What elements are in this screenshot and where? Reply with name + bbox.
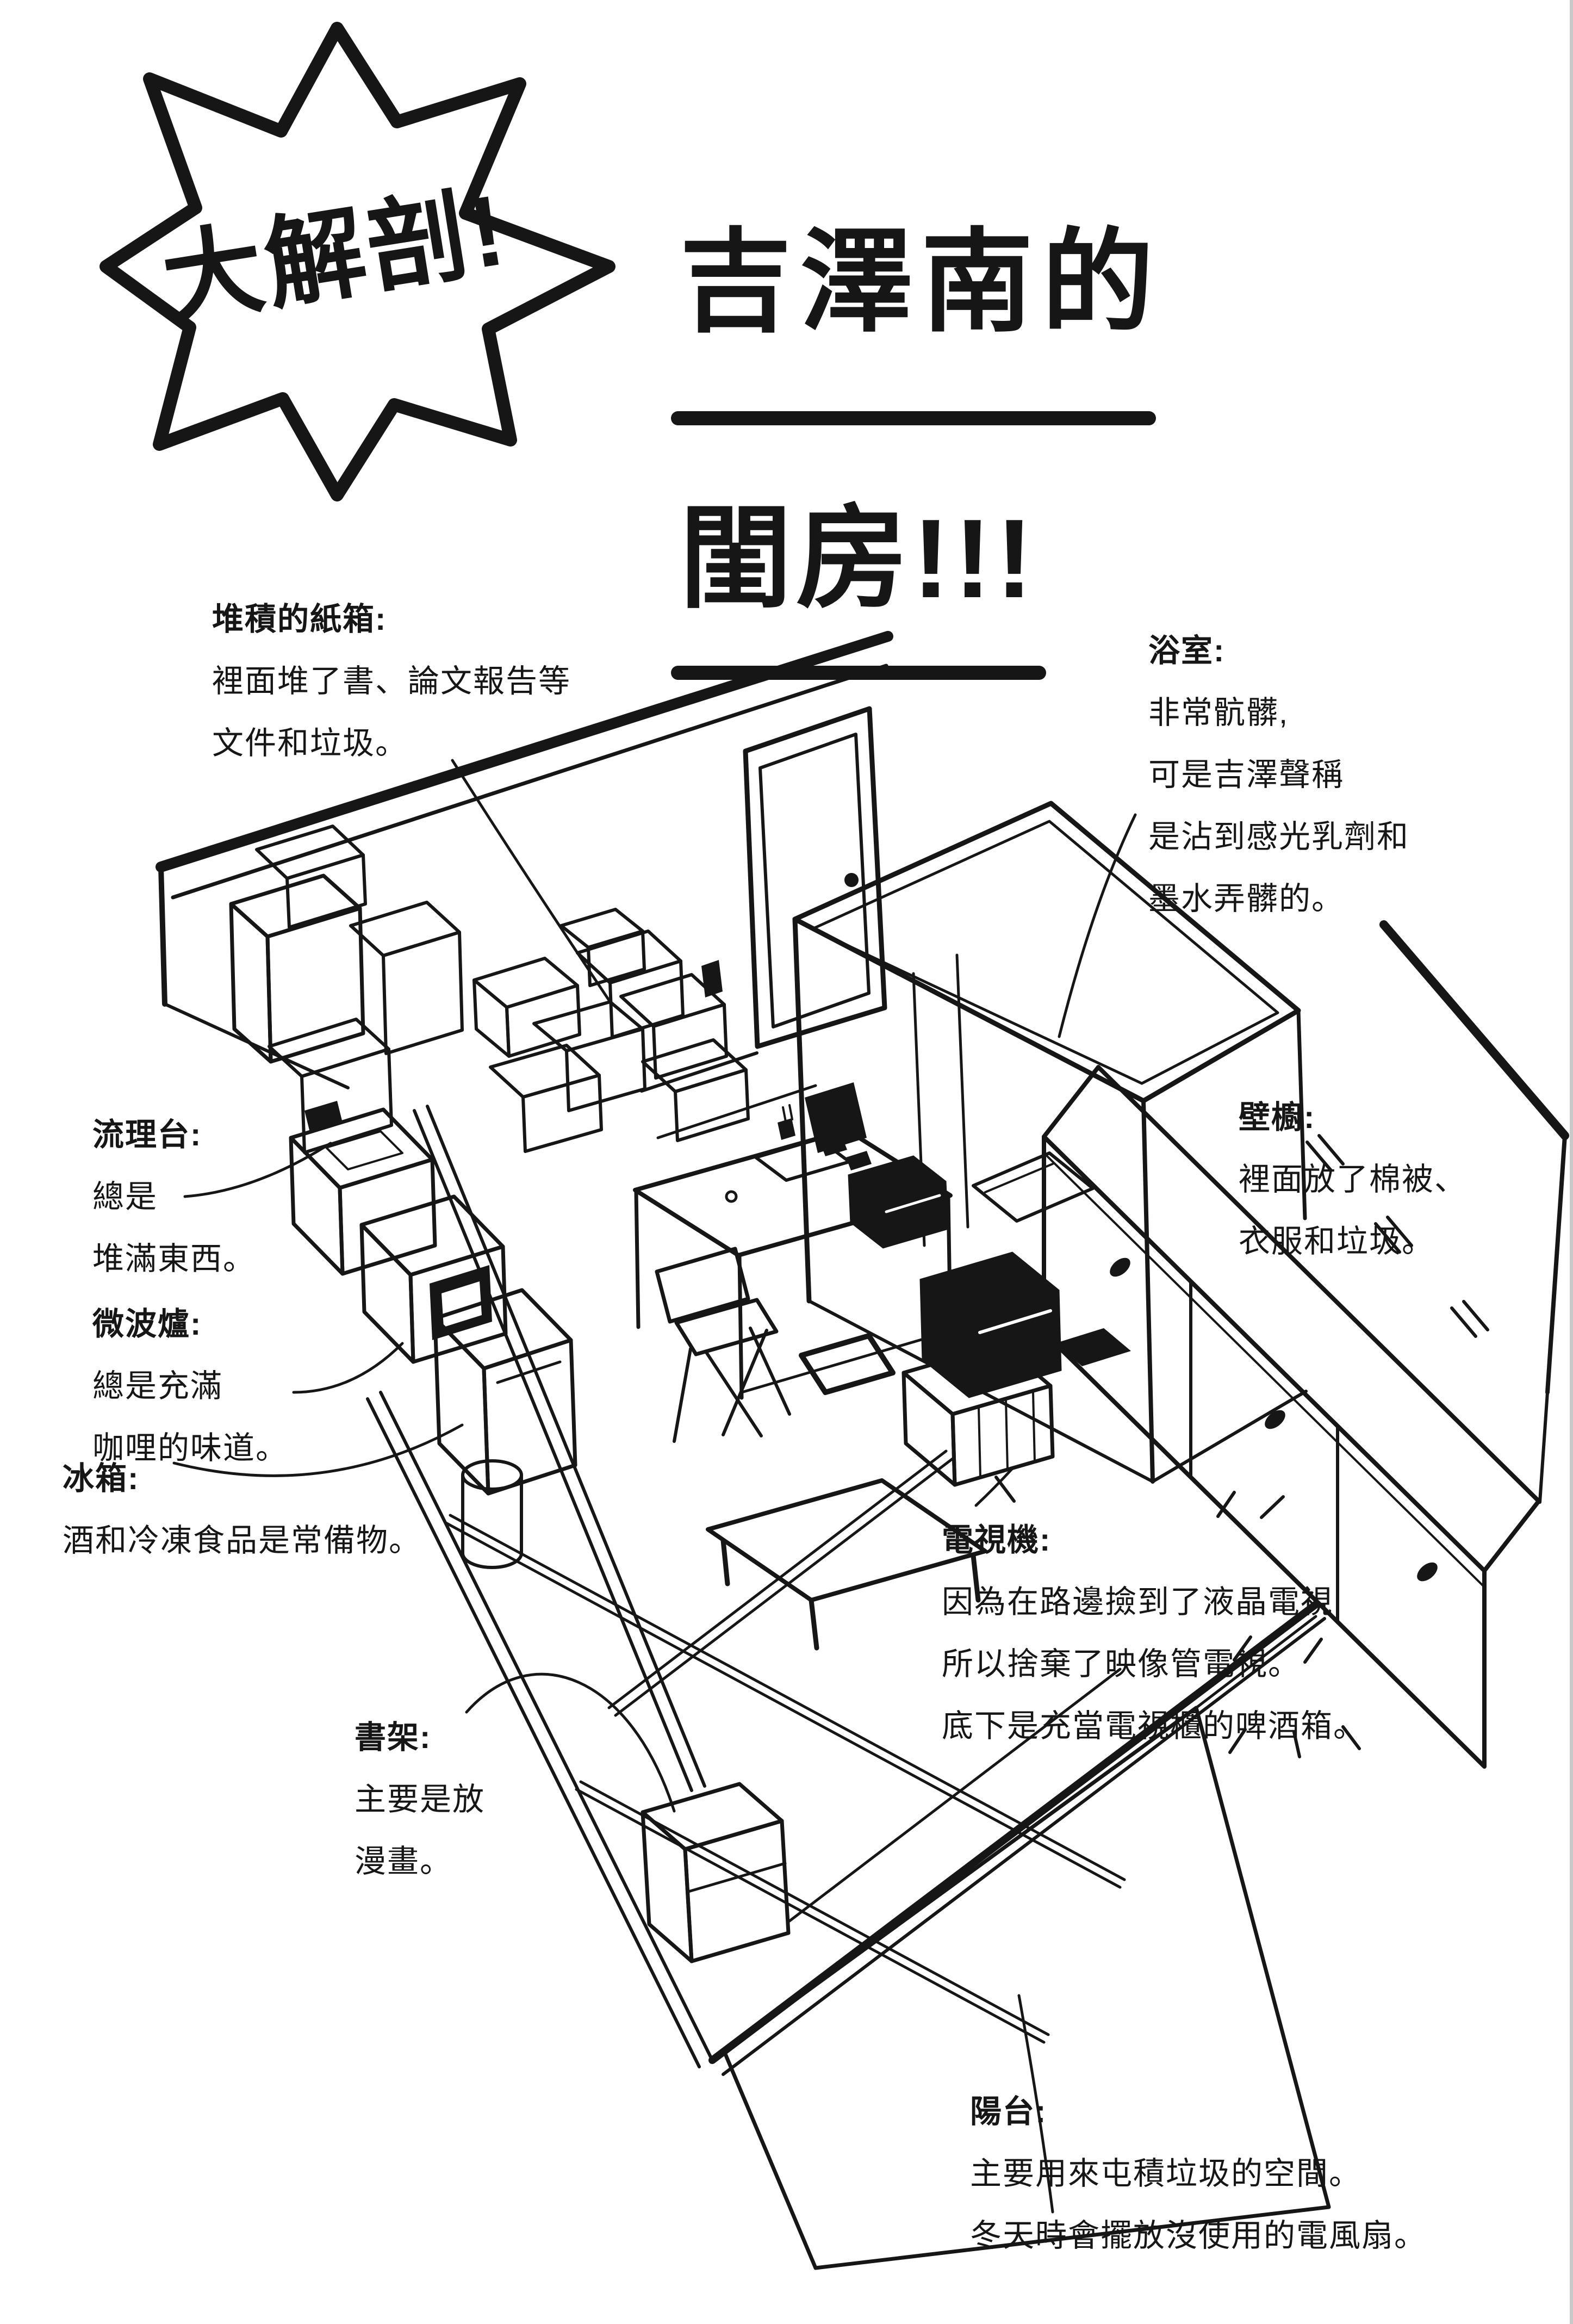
- label-bookshelf-line: 漫畫。: [355, 1831, 485, 1893]
- carton-stacks: [231, 826, 462, 1152]
- label-microwave-line: 總是充滿: [92, 1355, 288, 1417]
- label-tv: 電視機: 因為在路邊撿到了液晶電視, 所以捨棄了映像管電視。 底下是充當電視櫃的…: [942, 1509, 1366, 1757]
- scan-edge-shade: [1570, 0, 1573, 2324]
- page-title-line1: 吉澤南的: [680, 191, 1162, 354]
- label-bathroom-line: 是沾到感光乳劑和: [1148, 806, 1409, 868]
- label-balcony-title: 陽台:: [970, 2081, 1427, 2143]
- label-stacked-boxes: 堆積的紙箱: 裡面堆了書、論文報告等 文件和垃圾。: [212, 588, 571, 774]
- label-bathroom-line: 墨水弄髒的。: [1148, 868, 1409, 930]
- label-microwave-title: 微波爐:: [92, 1293, 288, 1355]
- label-stacked-boxes-line: 文件和垃圾。: [212, 712, 571, 774]
- label-tv-line: 所以捨棄了映像管電視。: [942, 1633, 1366, 1695]
- label-closet-title: 壁櫥:: [1239, 1087, 1467, 1149]
- label-bathroom: 浴室: 非常骯髒, 可是吉澤聲稱 是沾到感光乳劑和 墨水弄髒的。: [1148, 620, 1409, 930]
- floor-tablet: [801, 1336, 893, 1392]
- label-sink-line: 總是: [92, 1166, 256, 1228]
- label-closet-line: 裡面放了棉被、: [1239, 1149, 1467, 1211]
- label-tv-line: 底下是充當電視櫃的啤酒箱。: [942, 1695, 1366, 1757]
- label-stacked-boxes-title: 堆積的紙箱:: [212, 588, 571, 650]
- label-tv-title: 電視機:: [942, 1509, 1366, 1571]
- label-sink-title: 流理台:: [92, 1104, 256, 1166]
- label-balcony-line: 冬天時會擺放沒使用的電風扇。: [970, 2205, 1427, 2267]
- label-closet: 壁櫥: 裡面放了棉被、 衣服和垃圾。: [1239, 1087, 1467, 1273]
- label-bookshelf: 書架: 主要是放 漫畫。: [355, 1707, 485, 1893]
- label-sink-line: 堆滿東西。: [92, 1228, 256, 1290]
- label-bathroom-line: 非常骯髒,: [1148, 682, 1409, 744]
- label-sink: 流理台: 總是 堆滿東西。: [92, 1104, 256, 1290]
- folding-chair: [657, 1249, 789, 1441]
- label-fridge: 冰箱: 酒和冷凍食品是常備物。: [63, 1448, 421, 1572]
- label-stacked-boxes-line: 裡面堆了書、論文報告等: [212, 650, 571, 712]
- entrance-door: [701, 709, 885, 1046]
- label-bathroom-line: 可是吉澤聲稱: [1148, 744, 1409, 806]
- label-bookshelf-title: 書架:: [355, 1707, 485, 1769]
- label-tv-line: 因為在路邊撿到了液晶電視,: [942, 1571, 1366, 1633]
- label-balcony-line: 主要用來屯積垃圾的空間。: [970, 2143, 1427, 2205]
- manga-room-diagram-page: 大解剖! 吉澤南的 閨房!!! 堆積的紙箱: 裡面堆了書、論文報告等 文件和垃圾…: [0, 0, 1573, 2324]
- title-underline-2: [671, 666, 1046, 680]
- label-balcony: 陽台: 主要用來屯積垃圾的空間。 冬天時會擺放沒使用的電風扇。: [970, 2081, 1427, 2267]
- title-underline-1: [671, 411, 1156, 425]
- label-bookshelf-line: 主要是放: [355, 1769, 485, 1831]
- page-title-line2: 閨房!!!: [680, 468, 1037, 630]
- label-fridge-line: 酒和冷凍食品是常備物。: [63, 1510, 421, 1572]
- label-closet-line: 衣服和垃圾。: [1239, 1211, 1467, 1273]
- printer: [848, 1156, 948, 1248]
- bookshelf: [643, 1784, 788, 1961]
- carton-cluster: [474, 909, 748, 1151]
- label-bathroom-title: 浴室:: [1148, 620, 1409, 682]
- tv-on-beer-crates: [904, 1252, 1131, 1485]
- label-fridge-title: 冰箱:: [63, 1448, 421, 1510]
